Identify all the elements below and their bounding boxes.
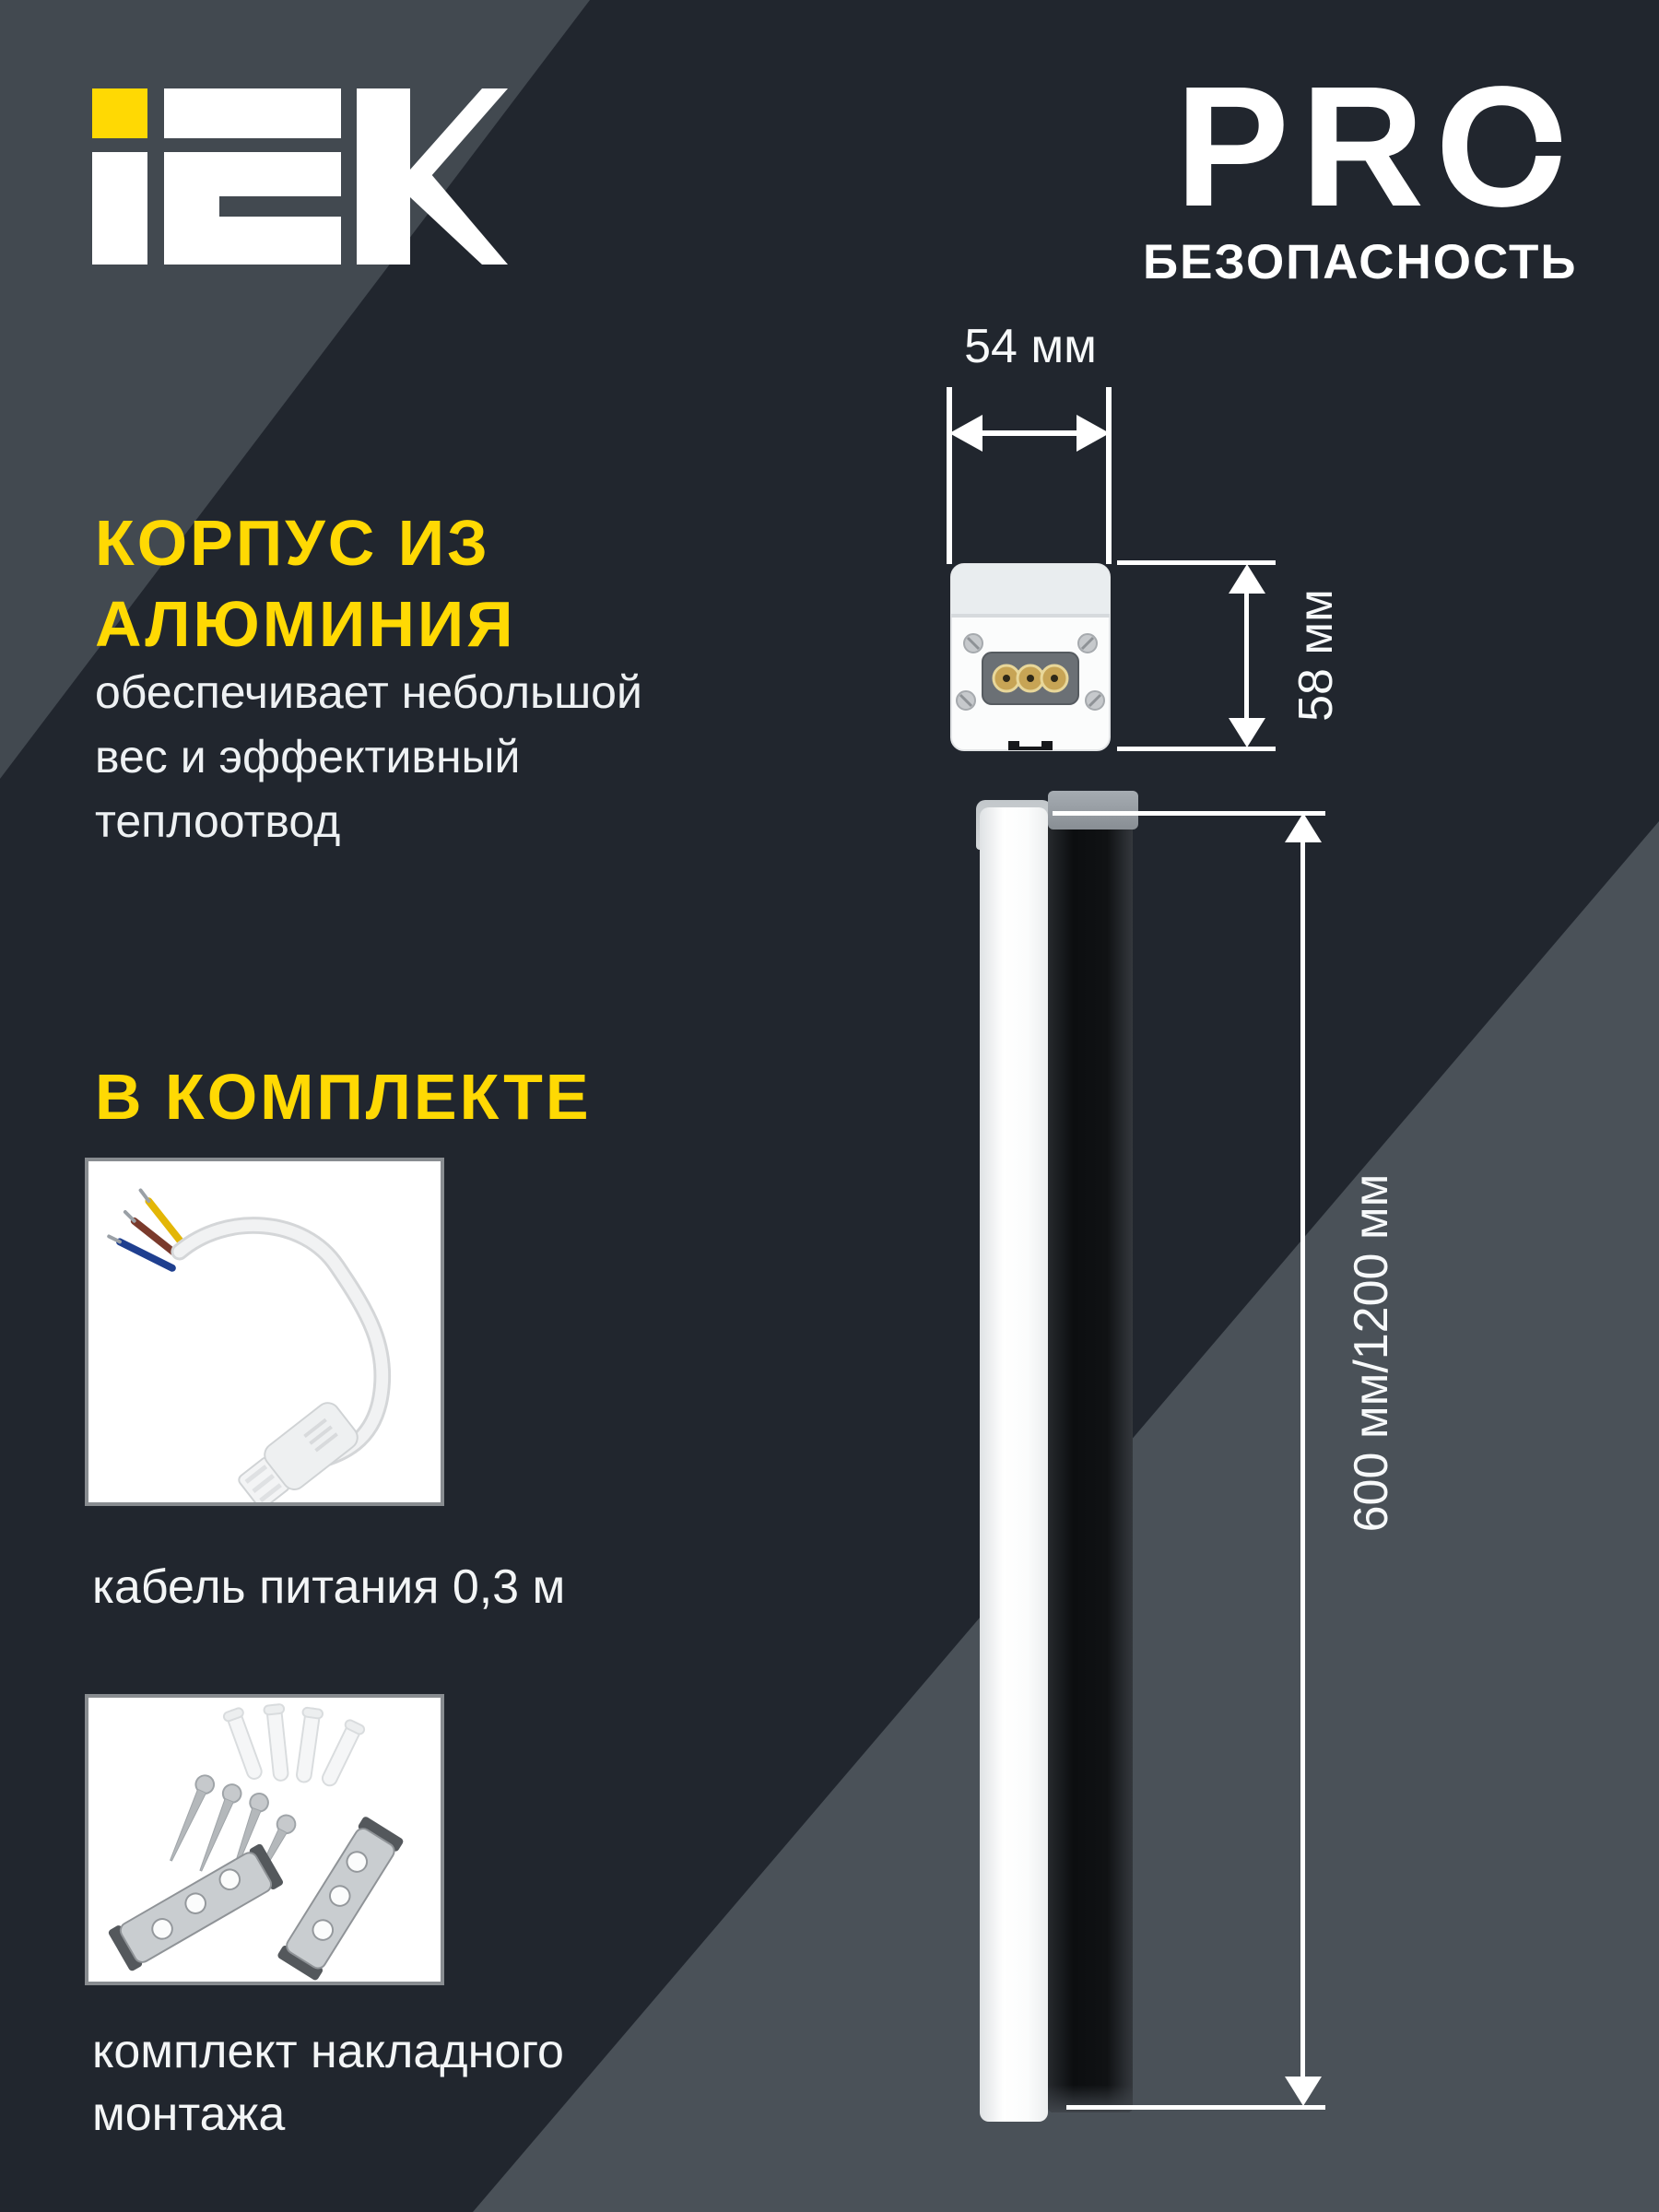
length-arrowhead-up-icon: [1285, 813, 1322, 842]
feature-description-line1: обеспечивает небольшой: [95, 660, 642, 724]
power-cable-caption: кабель питания 0,3 м: [92, 1556, 565, 1618]
width-arrowhead-left-icon: [949, 415, 982, 452]
width-arrowhead-right-icon: [1077, 415, 1110, 452]
mounting-kit-caption: комплект накладного монтажа: [92, 2020, 564, 2146]
pro-o-slit-icon: [1524, 142, 1574, 156]
height-arrowhead-up-icon: [1229, 564, 1265, 594]
pro-subtitle: БЕЗОПАСНОСТЬ: [1143, 234, 1569, 290]
height-arrowhead-down-icon: [1229, 718, 1265, 747]
mounting-kit-caption-line1: комплект накладного: [92, 2020, 564, 2083]
width-extension-line-left: [947, 387, 952, 564]
power-cable-photo: [85, 1158, 444, 1506]
cross-section-photo: [949, 562, 1112, 752]
mounting-kit-illustration: [88, 1698, 441, 1982]
feature-description-line3: теплоотвод: [95, 789, 642, 853]
feature-title: КОРПУС ИЗ АЛЮМИНИЯ: [95, 502, 516, 665]
height-dimension-line: [1244, 588, 1249, 724]
feature-title-line2: АЛЮМИНИЯ: [95, 583, 516, 665]
pro-wordmark: PRO: [1143, 74, 1580, 221]
length-dimension-line: [1300, 835, 1305, 2081]
feature-title-line1: КОРПУС ИЗ: [95, 502, 516, 583]
luminaire-housing: [1048, 794, 1133, 2112]
mounting-kit-photo: [85, 1694, 444, 1985]
power-cable-illustration: [88, 1161, 441, 1502]
included-title: В КОМПЛЕКТЕ: [95, 1056, 592, 1137]
mounting-kit-caption-line2: монтажа: [92, 2083, 564, 2146]
width-dimension-label: 54 мм: [949, 319, 1112, 374]
product-infographic: PRO БЕЗОПАСНОСТЬ КОРПУС ИЗ АЛЮМИНИЯ обес…: [0, 0, 1659, 2212]
width-extension-line-right: [1106, 387, 1112, 564]
feature-description: обеспечивает небольшой вес и эффективный…: [95, 660, 642, 853]
length-dimension-label: 600 мм/1200 мм: [1346, 1150, 1397, 1556]
iek-logo-icon: [88, 85, 513, 269]
feature-description-line2: вес и эффективный: [95, 724, 642, 789]
luminaire-diffuser: [980, 807, 1048, 2122]
length-arrowhead-down-icon: [1285, 2077, 1322, 2106]
brackets: [107, 1816, 404, 1982]
dowels: [223, 1704, 366, 1789]
pro-brand-block: PRO БЕЗОПАСНОСТЬ: [1143, 74, 1569, 290]
width-dimension-line: [979, 430, 1080, 436]
height-dimension-label: 58 мм: [1290, 563, 1342, 747]
luminaire-housing-cap: [1048, 791, 1138, 829]
